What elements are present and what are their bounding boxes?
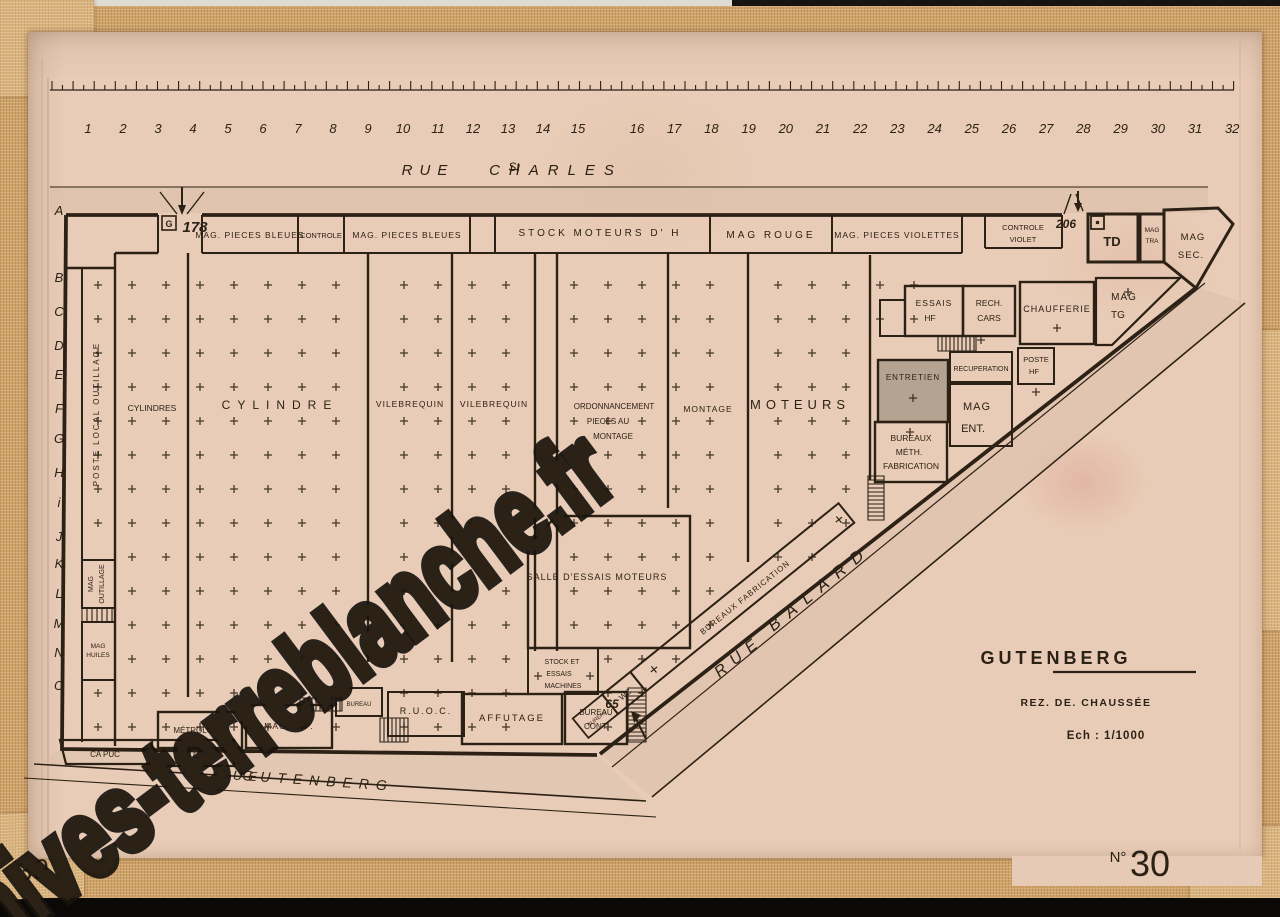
ruler-number: 15 [571,121,586,136]
ruler-number: 23 [889,121,905,136]
label-recuperation: RECUPERATION [953,366,1008,373]
label-ordonnancement-1: ORDONNANCEMENT [574,402,655,411]
label-mag-huiles-2: HUILES [86,652,110,659]
ruler-number: 9 [364,121,371,136]
ruler-number: 1 [84,121,91,136]
ruler-number: 21 [815,121,830,136]
ruler-number: 8 [329,121,337,136]
stair-hatch [82,608,115,622]
room-mag-tra-label-1: MAG [1145,227,1160,234]
label-mag-huiles-1: MAG [91,643,106,650]
ruler-number: 19 [741,121,755,136]
title-scale: Ech : 1/1000 [1067,730,1145,742]
label-mag-ent-1: MAG [963,401,991,413]
label-bureaux-meth-1: BUREAUX [890,433,931,443]
room-mag-sec [1164,208,1233,288]
street-label-st-charles: RUE St CHARLES [402,160,623,179]
label-entretien: ENTRETIEN [886,373,940,382]
label-vilebrequin-2: VILEBREQUIN [460,399,528,409]
title-gutenberg: GUTENBERG [980,648,1131,668]
gate-g-label: G [165,219,172,229]
label-rech-cars-2: CARS [977,313,1001,323]
street-st-charles-name: CHARLES [489,162,623,179]
label-mag-ent-2: ENT. [961,423,985,435]
label-poste-hf-1: POSTE [1023,355,1048,364]
label-montage: MONTAGE [683,404,732,414]
room-mag-pieces-bleues-1: MAG. PIECES BLEUES [195,230,304,240]
row-letter: E [55,367,64,382]
label-mag-outillage-1: MAG [88,576,95,592]
label-poste-hf-2: HF [1029,367,1039,376]
room-mag-pieces-bleues-2: MAG. PIECES BLEUES [352,230,461,240]
street-st-charles-rue: RUE [402,162,455,179]
floor-plan-svg: 1234567891011121314151617181920212223242… [0,0,1280,917]
room-td-label: TD [1103,234,1120,249]
label-bureaux-meth-3: FABRICATION [883,461,939,471]
ruler-number: 28 [1075,121,1091,136]
title-block: GUTENBERG REZ. DE. CHAUSSÉE Ech : 1/1000… [980,648,1196,884]
label-vilebrequin-1: VILEBREQUIN [376,399,444,409]
ruler-number: 2 [118,121,127,136]
label-moteurs: MOTEURS [750,397,850,412]
room-mag-pieces-violettes: MAG. PIECES VIOLETTES [834,230,959,240]
ruler-number: 22 [852,121,868,136]
ruler-number: 16 [630,121,645,136]
label-essais-hf-2: HF [924,313,935,323]
room-mag-tra-label-2: TRA [1146,238,1160,245]
ruler-number: 30 [1151,121,1166,136]
annex-dot [1096,221,1100,225]
label-chaufferie: CHAUFFERIE [1023,304,1091,314]
ruler-number: 26 [1001,121,1017,136]
label-mag-tg-1: MAG [1111,292,1137,303]
room-mag-sec-label-2: SEC. [1178,250,1204,261]
label-cylindres: CYLINDRES [128,403,177,413]
row-letter: D [54,338,63,353]
ruler-number: 20 [778,121,794,136]
ruler-number: 3 [154,121,162,136]
row-letter: i [58,495,62,510]
label-essais-hf-1: ESSAIS [916,298,953,308]
ruler-number: 29 [1112,121,1127,136]
room-controle: CONTROLE [300,231,342,240]
ruler-group: 1234567891011121314151617181920212223242… [50,81,1240,136]
room-stock-moteurs: STOCK MOTEURS D' H [519,228,682,239]
gate-206-label: 206 [1055,217,1076,231]
ruler-number: 11 [431,121,445,136]
street-st-charles-band [50,187,1208,213]
room-mag-sec-label-1: MAG [1181,232,1206,243]
ruler-number: 4 [189,121,196,136]
room-rech-cars [963,286,1015,336]
ruler-numbers: 1234567891011121314151617181920212223242… [84,121,1240,136]
ruler-number: 5 [224,121,232,136]
plan-number-label: N° [1110,849,1127,866]
ruler-number: 14 [536,121,550,136]
label-stock-3: MACHINES [545,683,582,690]
label-poste-local-outillage: POSTE LOCAL OUTILLAGE [92,342,101,486]
room-controle-violet-1: CONTROLE [1002,223,1044,232]
annex-rooms: TD MAG TRA MAG SEC. [1088,208,1233,288]
room-unlabeled-east [880,300,905,336]
label-bureaux-meth-2: MÉTH. [896,447,922,457]
ruler-number: 24 [926,121,941,136]
ruler-number: 27 [1038,121,1054,136]
row-letter: C [54,304,64,319]
ruler-number: 31 [1188,121,1202,136]
label-mag-tg-2: TG [1111,310,1125,321]
ruler-number: 6 [259,121,267,136]
label-affutage: AFFUTAGE [479,713,545,724]
row-letter: B [55,270,64,285]
title-level: REZ. DE. CHAUSSÉE [1020,696,1151,709]
label-stock-2: ESSAIS [546,671,572,678]
room-controle-violet-2: VIOLET [1010,235,1037,244]
label-ruoc: R.U.O.C. [400,706,453,716]
label-ordonnancement-3: MONTAGE [593,432,633,441]
ruler-number: 13 [501,121,516,136]
ruler-tick-marks [52,81,1234,90]
ruler-ticks [52,81,1234,90]
ruler-number: 25 [964,121,980,136]
label-salle-essais: SALLE D'ESSAIS MOTEURS [527,572,668,582]
ruler-number: 17 [667,121,682,136]
plan-number-value: 30 [1130,843,1170,884]
ruler-number: 12 [466,121,481,136]
room-poste-hf [1018,348,1054,384]
hall-labels: CYLINDRES CYLINDRE VILEBREQUIN VILEBREQU… [128,397,850,441]
scanned-floor-plan-document: 1234567891011121314151617181920212223242… [0,0,1280,917]
ruler-number: 7 [294,121,302,136]
room-mag-rouge: MAG ROUGE [726,230,815,241]
room-mag-huiles [82,622,115,680]
label-stock-1: STOCK ET [545,659,581,666]
balard-inner-kerb [612,283,1205,767]
row-letter: A [54,203,64,218]
ruler-number: 18 [704,121,719,136]
label-rech-cars-1: RECH. [976,298,1002,308]
room-entretien [878,360,948,422]
label-mag-outillage-2: OUTILLAGE [99,564,106,604]
stair-hatch [938,336,976,351]
ruler-number: 32 [1225,121,1240,136]
room-essais-hf [905,286,963,336]
gate-65-label: 65 [605,697,619,711]
label-cylindre: CYLINDRE [222,398,339,412]
ruler-number: 10 [396,121,411,136]
row-letter: J [55,529,63,544]
